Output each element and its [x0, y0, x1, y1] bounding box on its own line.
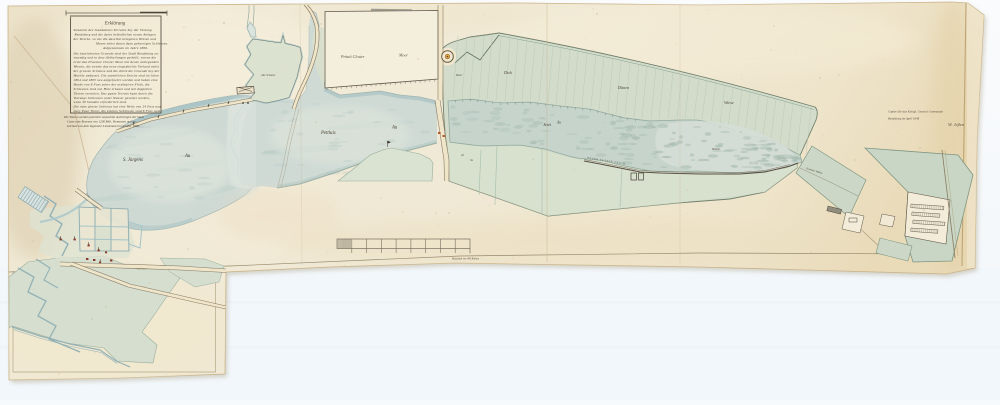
svg-text:Situation des Inundations Terr: Situation des Inundations Terrains bey d… [74, 28, 152, 32]
svg-text:Die neue grosse Schleuse hat e: Die neue grosse Schleuse hat eine Weite … [73, 105, 162, 109]
svg-text:der grossen Schleuse und die d: der grossen Schleuse und die dritte die … [74, 69, 161, 73]
svg-text:Prästö Closter: Prästö Closter [340, 54, 365, 59]
svg-text:Copiert für das Königl. Genera: Copiert für das Königl. General Commando [888, 110, 943, 114]
svg-text:1804 und 1805 neu aufgefuehrt: 1804 und 1805 neu aufgefuehrt worden und… [74, 78, 158, 82]
svg-text:Schleusen sind von Holz erbaue: Schleusen sind von Holz erbauet und mit … [74, 87, 153, 91]
svg-text:Casse eine Revenue von 1200 Rt: Casse eine Revenue von 1200 Rthl. Vermes… [67, 119, 136, 123]
svg-text:2b: 2b [461, 153, 465, 157]
svg-text:Au: Au [391, 126, 398, 131]
svg-text:Wiese: Wiese [724, 100, 734, 105]
svg-text:Au: Au [556, 121, 561, 125]
svg-text:Moore nebst denen dazu gehoeri: Moore nebst denen dazu gehoerigen Schleu… [95, 41, 168, 45]
svg-text:Au: Au [184, 154, 191, 159]
svg-text:Alte Schanze: Alte Schanze [260, 74, 276, 77]
svg-text:S. Jürgens: S. Jürgens [123, 158, 143, 163]
svg-text:Die bezeichneten Gruende sind: Die bezeichneten Gruende sind der Stadt … [73, 51, 160, 55]
svg-text:Moor: Moor [455, 74, 463, 77]
svg-text:W. Jeβen: W. Jeβen [948, 122, 965, 127]
svg-text:Moor: Moor [398, 53, 408, 58]
svg-text:Wiese: Wiese [712, 147, 720, 151]
svg-text:Dünen: Dünen [617, 85, 629, 90]
svg-text:Diek: Diek [503, 70, 512, 75]
svg-text:Die Wiesen werden jaehrlich ve: Die Wiesen werden jaehrlich verpachtet u… [63, 115, 144, 119]
svg-text:erste das Praestoe Closter Moo: erste das Praestoe Closter Moor mit dene… [74, 60, 160, 64]
svg-text:Rendsburg im April 1848: Rendsburg im April 1848 [887, 117, 920, 121]
svg-text:Erklärung: Erklärung [104, 22, 126, 27]
svg-text:Maasstab von 400 Ruthen: Maasstab von 400 Ruthen [451, 258, 480, 261]
svg-text:Aufgenommen im Jahre 1806.: Aufgenommen im Jahre 1806. [102, 46, 148, 50]
svg-text:3a: 3a [470, 158, 474, 162]
svg-text:Muehle umfasset. Die saemtlich: Muehle umfasset. Die saemtlichen Deiche … [73, 74, 160, 78]
svg-text:Thoren versehen. Das ganze Ter: Thoren versehen. Das ganze Terrain kann … [74, 91, 154, 95]
svg-text:zeichnet von dem Ingenieur Lie: zeichnet von dem Ingenieur Lieutenant im… [66, 124, 140, 128]
svg-text:Pettluis: Pettluis [320, 131, 336, 136]
svg-text:wozu 36 Stunden erforderlich s: wozu 36 Stunden erforderlich sind. [74, 100, 128, 104]
